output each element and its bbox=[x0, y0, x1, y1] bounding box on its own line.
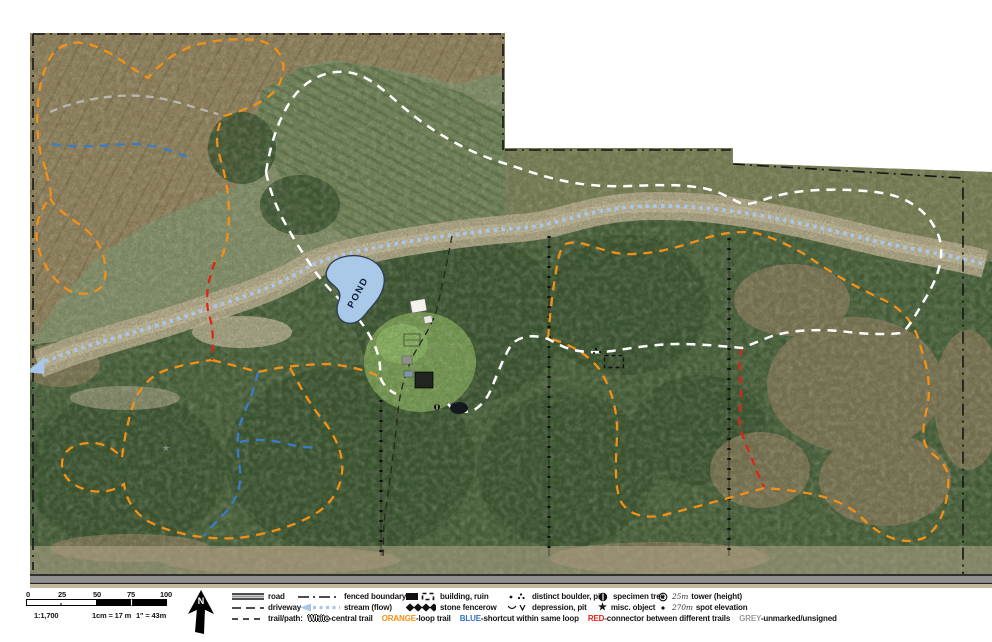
legend-trail-colors: White-central trail ORANGE-loop trail BL… bbox=[308, 614, 837, 623]
legend-stream: stream (flow) bbox=[298, 603, 392, 612]
misc-object-symbol-icon: ★ bbox=[598, 603, 607, 612]
scale-bar-ticks: 0 25 50 75 100 bbox=[26, 590, 176, 599]
barn-building bbox=[415, 372, 433, 388]
north-label: N bbox=[198, 596, 205, 606]
legend-boulder: distinct boulder, pile bbox=[508, 592, 607, 601]
legend-stone-fencerow: stone fencerow bbox=[406, 603, 497, 612]
trail-map-page: POND ★ 0 25 bbox=[0, 0, 992, 642]
legend-tower-label: tower (height) bbox=[691, 592, 742, 601]
misc-object-star-marker: ★ bbox=[162, 443, 170, 453]
legend-depression-label: depression, pit bbox=[532, 603, 587, 612]
shed-building bbox=[402, 356, 412, 364]
scale-tick: 50 bbox=[93, 590, 101, 599]
legend-stream-label: stream (flow) bbox=[344, 603, 392, 612]
legend-stone-fencerow-label: stone fencerow bbox=[440, 603, 497, 612]
scale-tick: 100 bbox=[160, 590, 172, 599]
legend-tower: 25mtower (height) bbox=[658, 592, 742, 602]
scale-tick: 75 bbox=[127, 590, 135, 599]
fenced-boundary-symbol-icon bbox=[298, 594, 340, 600]
road-symbol-icon bbox=[232, 592, 264, 601]
scale-metric: 1cm = 17 m bbox=[92, 611, 131, 620]
legend-road: road bbox=[232, 592, 285, 601]
legend-road-label: road bbox=[268, 592, 285, 601]
legend-driveway-label: driveway bbox=[268, 603, 301, 612]
boulder-symbol-icon bbox=[508, 592, 528, 601]
aerial-imagery: POND ★ bbox=[0, 0, 992, 642]
legend-specimen-tree: specimen tree bbox=[598, 592, 665, 602]
scale-bar-texts: 1:1,700 1cm = 17 m 1" = 43m bbox=[26, 611, 176, 621]
legend-misc-object-label: misc. object bbox=[611, 603, 655, 612]
legend-trail-path: trail/path: bbox=[232, 614, 303, 623]
legend-trail-orange: ORANGE-loop trail bbox=[382, 614, 451, 623]
depression-pit-symbol-icon bbox=[508, 603, 528, 612]
legend-trail-white: White-central trail bbox=[308, 614, 373, 623]
legend-trail-grey: GREY-unmarked/unsigned bbox=[739, 614, 837, 623]
stream-symbol-icon bbox=[298, 603, 340, 612]
legend-fenced-boundary-label: fenced boundary bbox=[344, 592, 406, 601]
scale-imperial: 1" = 43m bbox=[136, 611, 166, 620]
legend: 0 25 50 75 100 1:1,700 1cm = 17 m 1" = 4… bbox=[0, 588, 992, 642]
legend-trail-red: RED-connector between different trails bbox=[588, 614, 730, 623]
legend-spot-elevation-label: spot elevation bbox=[696, 603, 748, 612]
legend-spot-elevation: 270mspot elevation bbox=[658, 603, 748, 612]
legend-fenced-boundary: fenced boundary bbox=[298, 592, 406, 601]
legend-boulder-label: distinct boulder, pile bbox=[532, 592, 607, 601]
legend-tower-value: 25m bbox=[672, 592, 688, 601]
legend-building-ruin: building, ruin bbox=[406, 592, 489, 601]
building-ruin-symbol-icon bbox=[406, 592, 436, 601]
specimen-tree-symbol-icon bbox=[598, 592, 609, 602]
yard-pond bbox=[450, 402, 468, 414]
scale-ratio: 1:1,700 bbox=[34, 611, 58, 620]
scale-bar-graphic bbox=[26, 599, 168, 607]
legend-trail-path-label: trail/path: bbox=[268, 614, 303, 623]
tower-symbol-icon bbox=[658, 592, 668, 602]
house-building bbox=[410, 299, 427, 313]
specimen-tree-marker bbox=[434, 404, 440, 410]
legend-building-ruin-label: building, ruin bbox=[440, 592, 489, 601]
legend-depression: depression, pit bbox=[508, 603, 587, 612]
trail-symbol-icon bbox=[232, 616, 264, 622]
legend-misc-object: ★misc. object bbox=[598, 603, 655, 612]
scale-tick: 25 bbox=[58, 590, 66, 599]
legend-spot-value: 270m bbox=[672, 603, 693, 612]
road bbox=[30, 575, 992, 588]
scale-bar: 0 25 50 75 100 1:1,700 1cm = 17 m 1" = 4… bbox=[26, 590, 176, 621]
driveway-symbol-icon bbox=[232, 605, 264, 611]
stone-fencerow-symbol-icon bbox=[406, 603, 436, 612]
north-arrow: N bbox=[184, 589, 218, 637]
aerial-trail-map: POND ★ bbox=[0, 0, 992, 642]
spot-elevation-symbol-icon bbox=[658, 604, 668, 612]
scale-tick: 0 bbox=[26, 590, 30, 599]
legend-trail-blue: BLUE-shortcut within same loop bbox=[460, 614, 579, 623]
legend-driveway: driveway bbox=[232, 603, 301, 612]
